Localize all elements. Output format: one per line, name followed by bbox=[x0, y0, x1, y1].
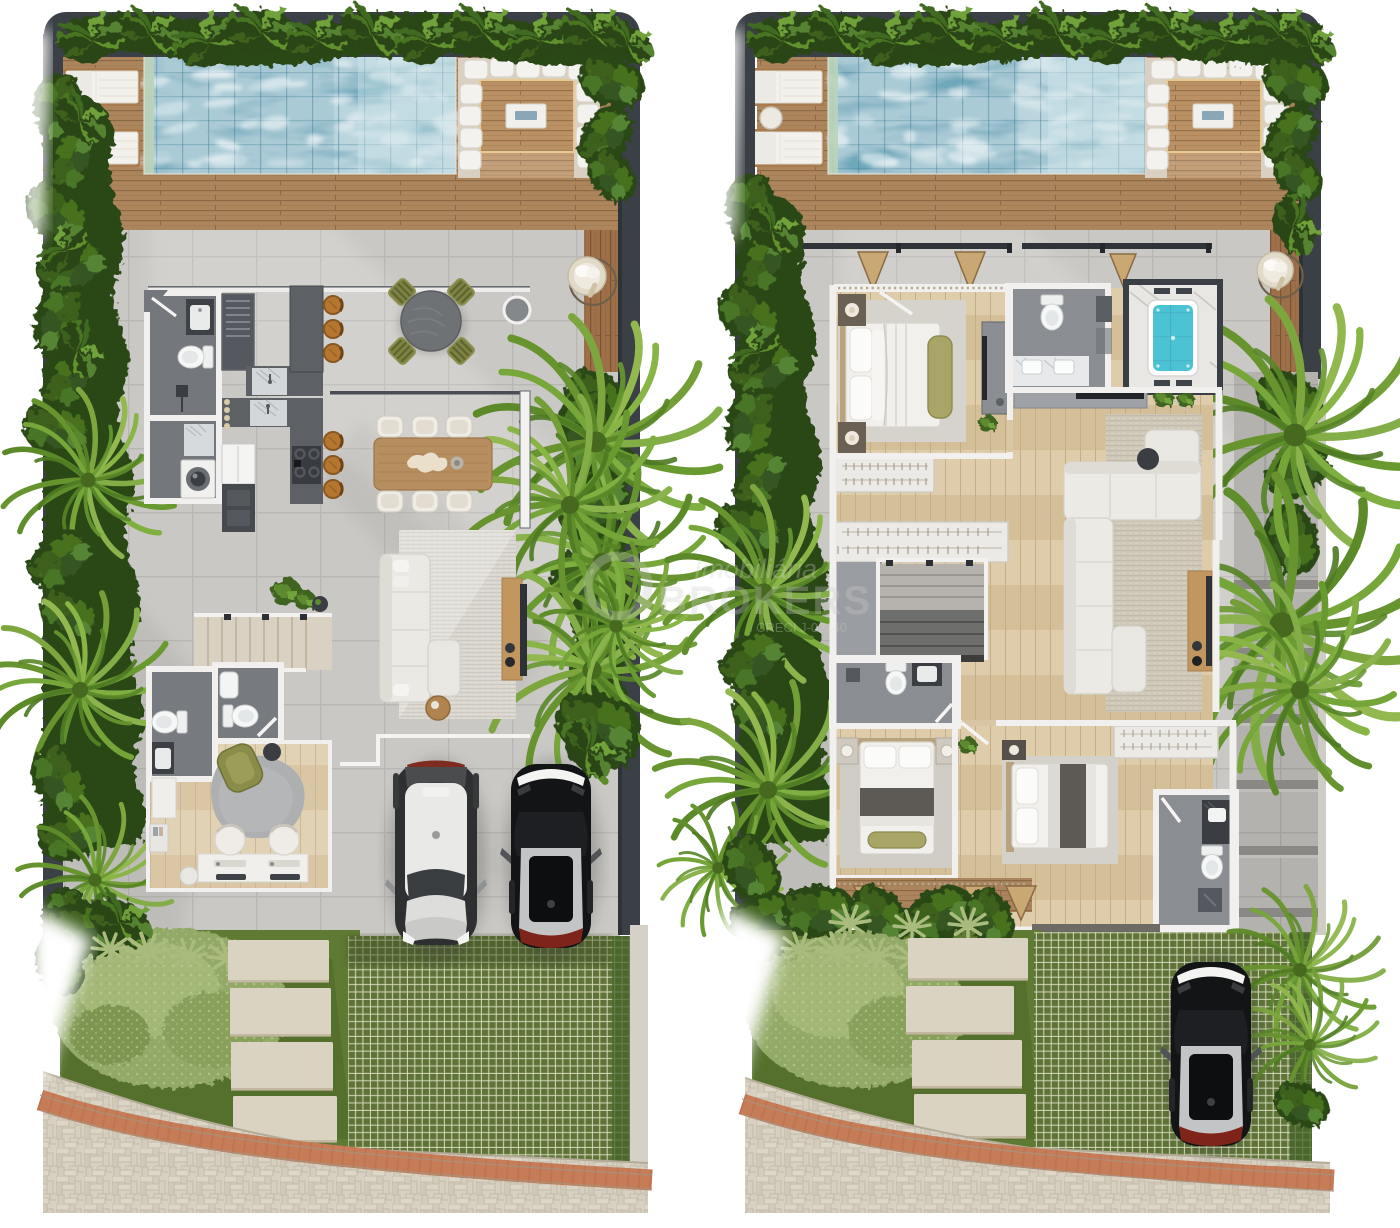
svg-text:BROKERS: BROKERS bbox=[658, 579, 872, 623]
svg-text:CRECI J-02140: CRECI J-02140 bbox=[756, 620, 847, 635]
